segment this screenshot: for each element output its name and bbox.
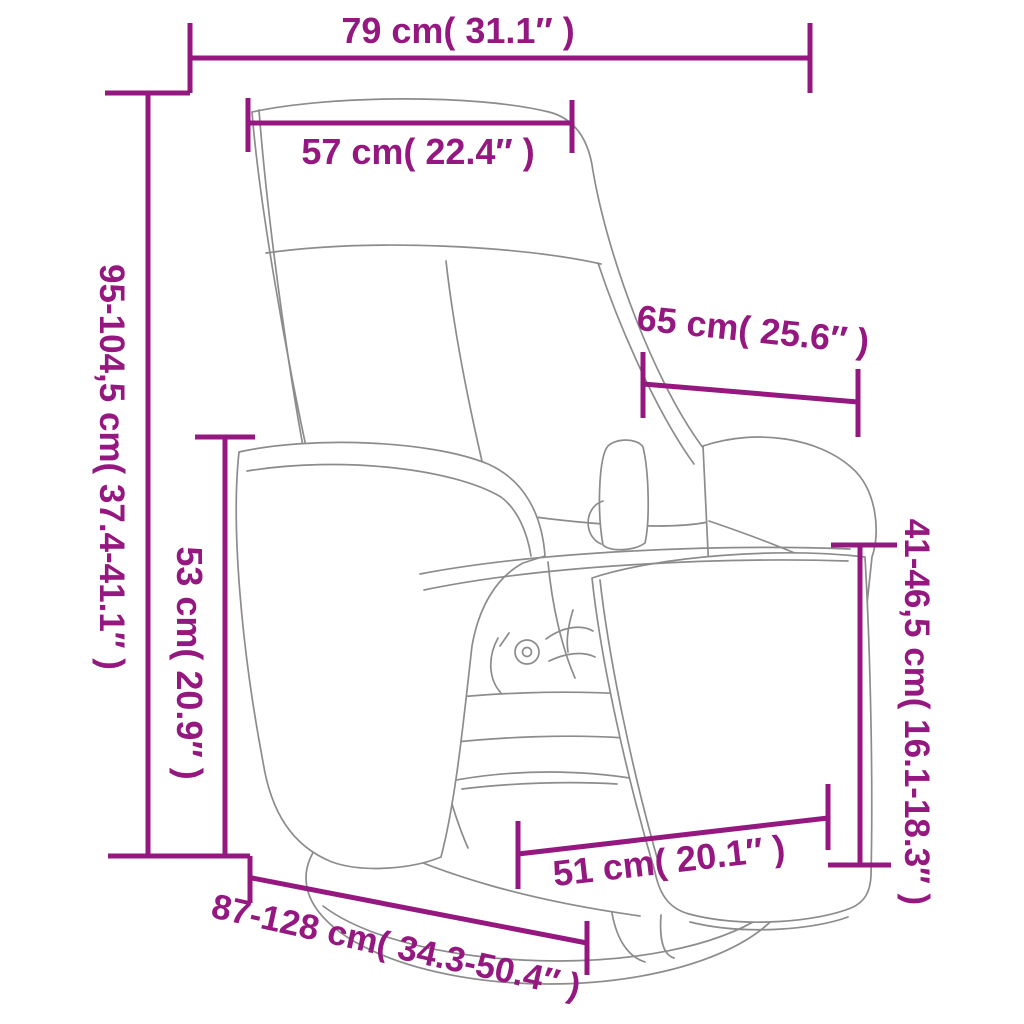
chair-mechanism-hub — [515, 640, 539, 664]
dimension-label-armrest-height: 53 cm( 20.9″ ) — [168, 546, 210, 779]
chair-column-slat-2 — [447, 736, 625, 743]
remote-control — [599, 440, 648, 550]
dimension-diagram: 79 cm( 31.1″ ) 57 cm( 22.4″ ) 95-104,5 c… — [0, 0, 1024, 1024]
dimension-label-overall-width: 79 cm( 31.1″ ) — [341, 10, 574, 52]
dimension-label-overall-height: 95-104,5 cm( 37.4-41.1″ ) — [91, 264, 131, 670]
dimension-label-backrest-width: 57 cm( 22.4″ ) — [301, 131, 534, 173]
chair-mechanism-bracket — [491, 610, 595, 693]
dimension-label-footrest-height: 41-46,5 cm( 16.1-18.3″ ) — [896, 519, 936, 905]
